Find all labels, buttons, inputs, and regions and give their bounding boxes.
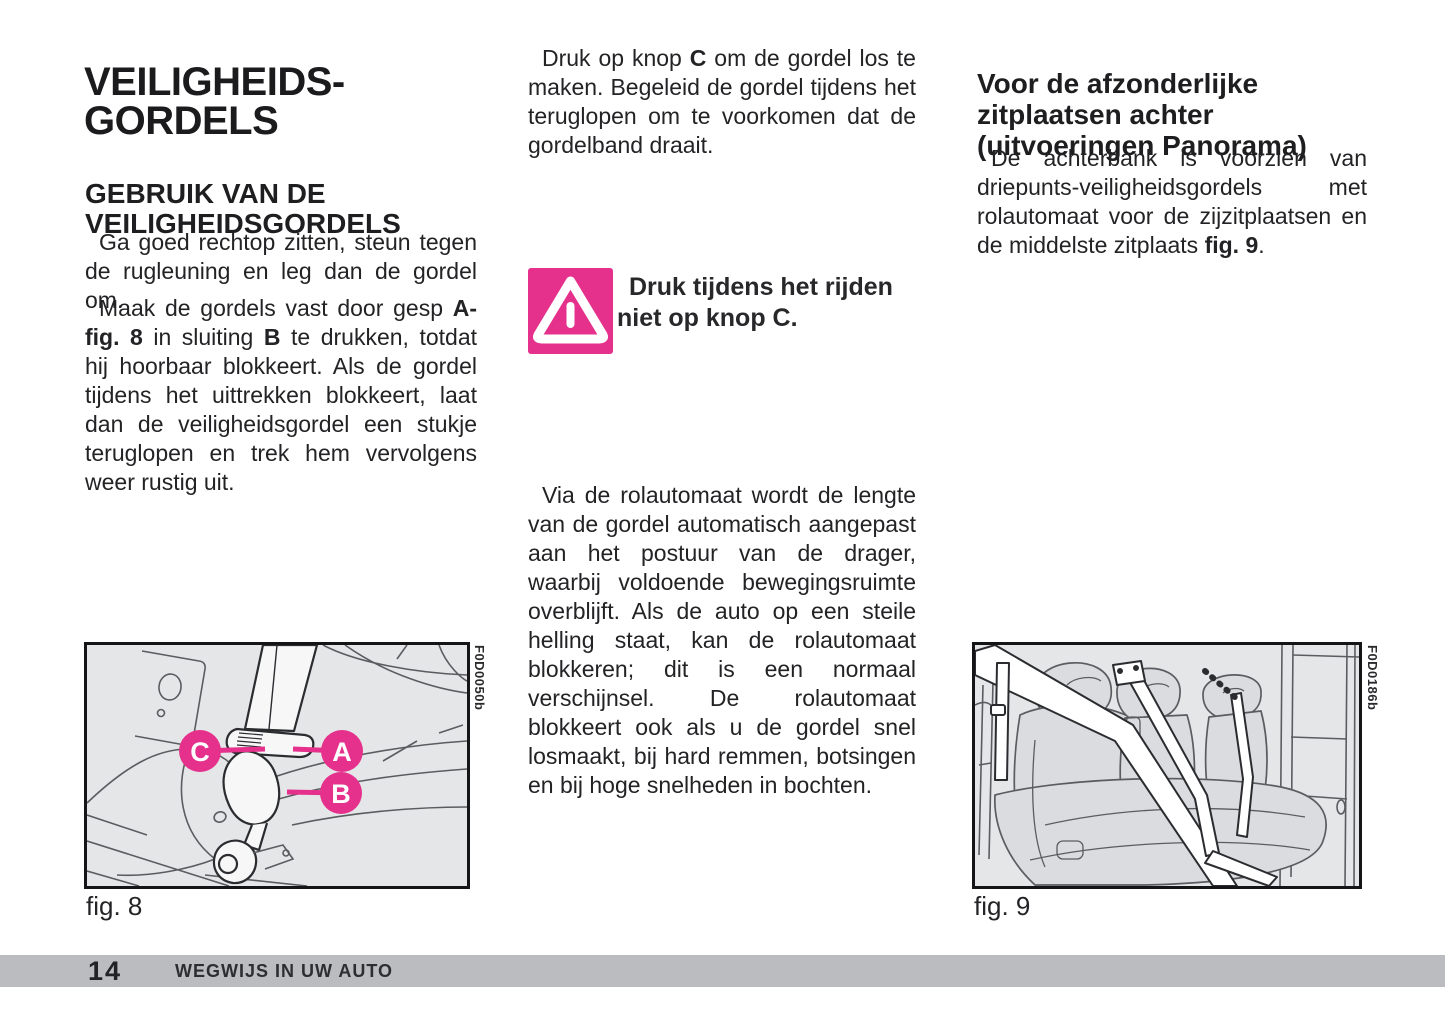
fig8-photo-code: F0D0050b [472,645,487,710]
fig9-caption: fig. 9 [974,891,1030,922]
label-c-text: C [190,737,210,767]
warning-text: Druk tijdens het rijden niet op knop C. [617,272,919,334]
bold-term: fig. 9 [1205,232,1259,258]
paragraph-release-button: Druk op knop C om de gordel los te maken… [528,44,916,160]
page-title: VEILIGHEIDS- GORDELS [84,63,345,141]
fig9-photo-code: F0D0186b [1365,645,1380,710]
manual-page: VEILIGHEIDS- GORDELS GEBRUIK VAN DE VEIL… [0,0,1445,1017]
fig9-drawing [975,645,1359,886]
paragraph-rear-bench: De achterbank is voorzien van driepunts-… [977,144,1367,260]
fig8-caption: fig. 8 [86,891,142,922]
paragraph-retractor: Via de rolautomaat wordt de lengte van d… [528,481,916,800]
label-a-text: A [332,737,352,767]
exclamation-bar [567,302,575,328]
figure-8-buckle-illustration: C A B [84,642,470,889]
text-run: Via de rolautomaat wordt de lengte van d… [528,482,916,798]
text-run: De achterbank is voorzien van driepunts-… [977,145,1367,258]
figure-9-rear-seats-illustration [972,642,1362,889]
fig8-drawing: C A B [87,645,467,886]
text-run: Druk op knop [542,45,690,71]
footer-page-number: 14 [88,955,122,987]
warning-triangle-icon [528,268,613,354]
far-left-belt [995,663,1009,780]
paragraph-fasten-belts: Maak de gordels vast door gesp A-fig. 8 … [85,294,477,497]
label-b-text: B [331,779,351,809]
text-run: Maak de gordels vast door gesp [99,295,453,321]
bold-term: B [264,324,281,350]
far-left-latch [991,705,1005,715]
footer-section-title: WEGWIJS IN UW AUTO [175,955,393,987]
bold-term: C [690,45,707,71]
text-run: . [1258,232,1264,258]
warning-icon [528,268,613,354]
text-run: in sluiting [143,324,264,350]
